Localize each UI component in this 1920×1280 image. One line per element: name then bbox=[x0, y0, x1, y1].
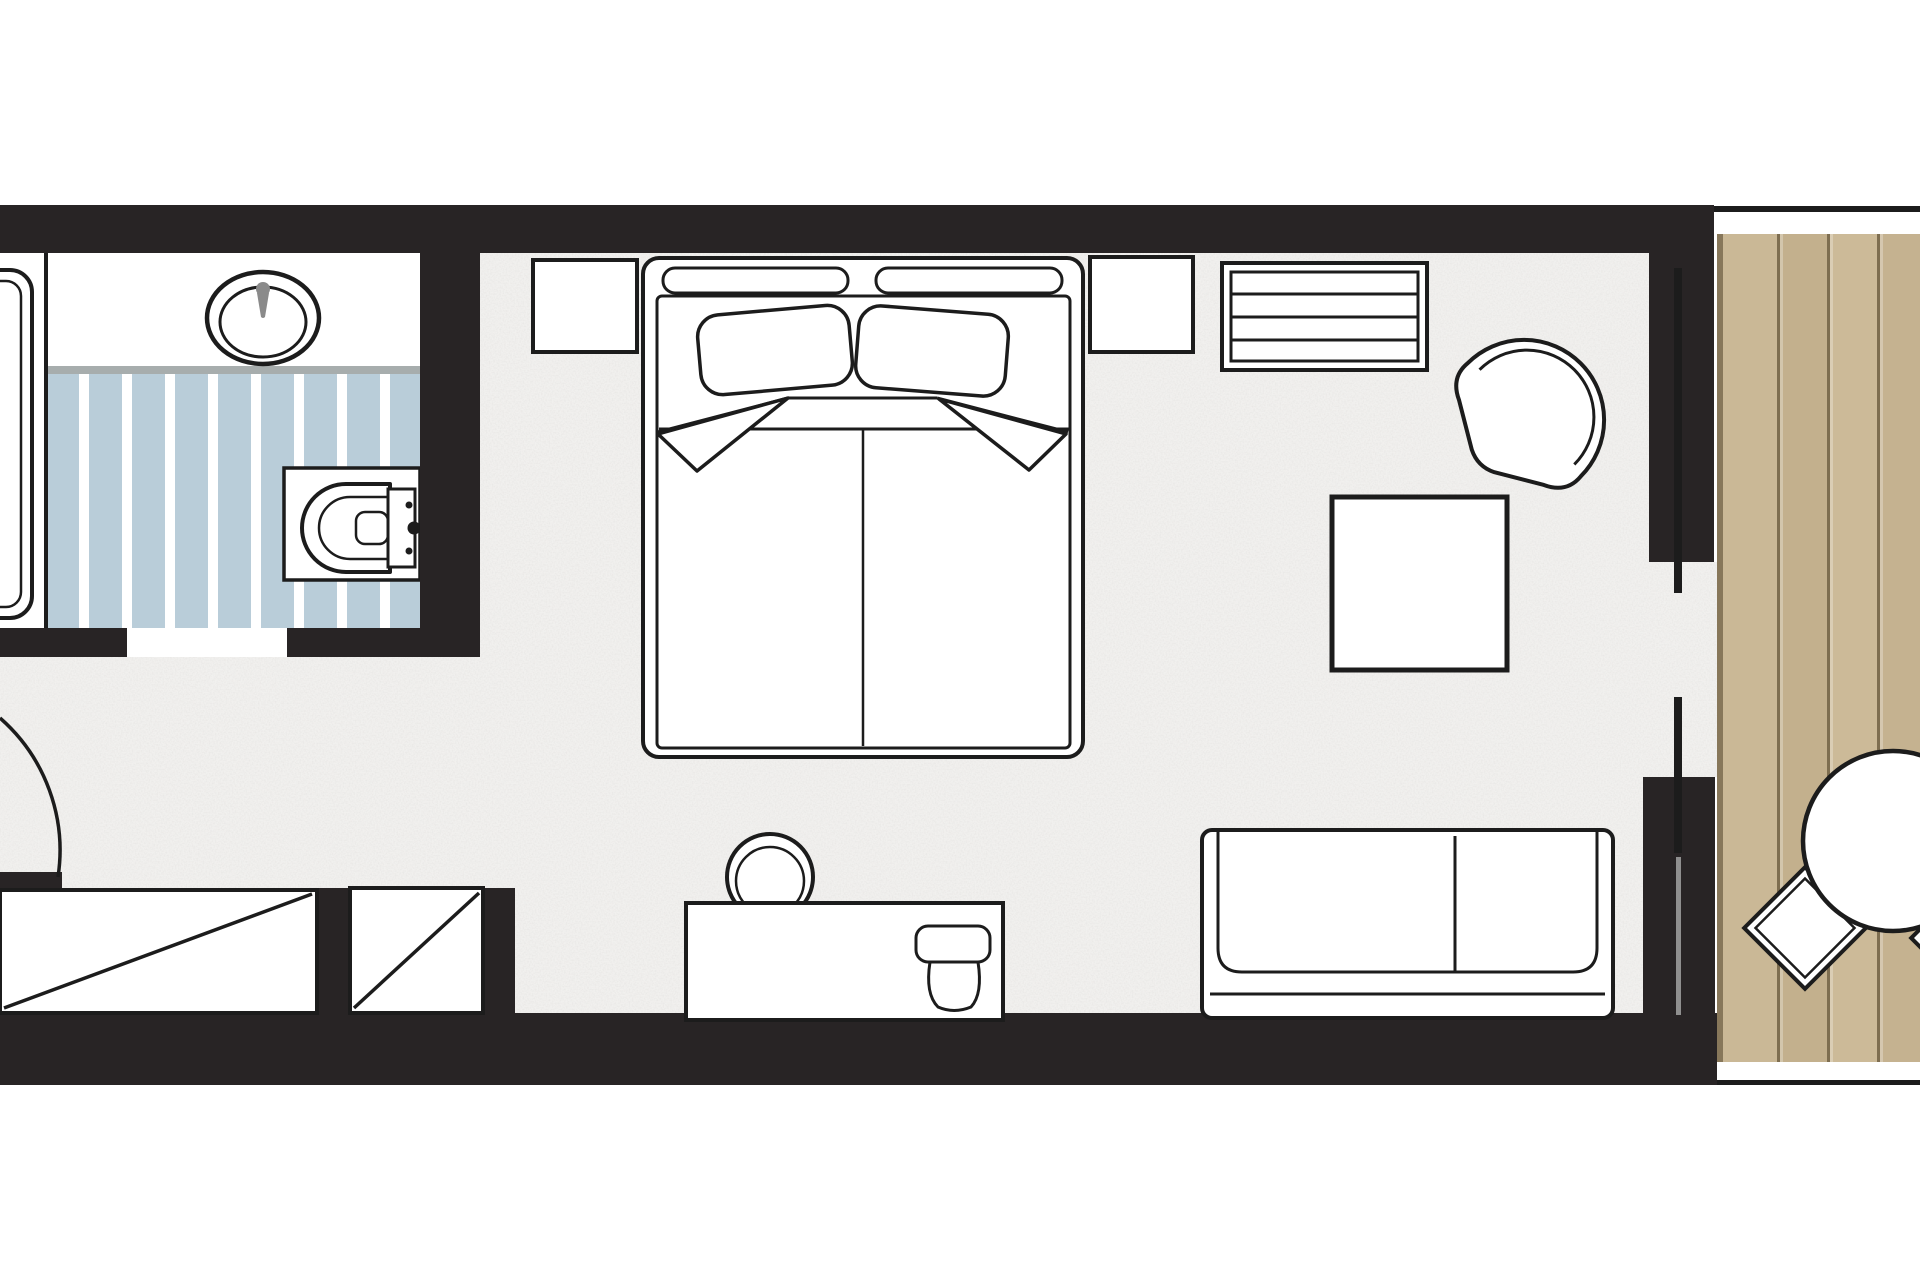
wall-bathroom-bottom-left bbox=[0, 628, 127, 657]
sofa bbox=[1202, 830, 1613, 1018]
luggage-bench bbox=[1222, 263, 1427, 370]
wall-bottom bbox=[0, 1013, 1717, 1085]
floorplan-canvas bbox=[0, 0, 1920, 1280]
wall-wardrobe-divider bbox=[317, 888, 350, 1016]
vanity-counter-edge bbox=[46, 366, 420, 374]
double-bed bbox=[643, 258, 1083, 757]
vanity-sink bbox=[207, 272, 319, 364]
wardrobe-right bbox=[350, 888, 483, 1013]
headboard-cushion-left bbox=[663, 268, 848, 293]
toilet-flush-dot bbox=[408, 522, 421, 535]
wardrobe-left bbox=[0, 890, 317, 1013]
nightstand-left bbox=[533, 260, 637, 352]
headboard-cushion-right bbox=[876, 268, 1062, 293]
nightstand-right bbox=[1090, 257, 1193, 352]
tub-partition-line bbox=[44, 253, 48, 628]
sliding-door-glass bbox=[1676, 857, 1681, 1015]
wall-bathroom-bottom-right bbox=[287, 628, 480, 657]
wall-wardrobe-right bbox=[483, 888, 515, 1016]
bathtub bbox=[0, 270, 32, 618]
pillow-right bbox=[854, 304, 1010, 398]
wall-top bbox=[0, 205, 1714, 253]
wall-bathroom-right bbox=[420, 253, 480, 657]
pillow-left bbox=[696, 304, 854, 397]
bathroom bbox=[0, 253, 421, 628]
floorplan-drawing bbox=[0, 0, 1920, 1280]
toilet bbox=[284, 468, 421, 580]
side-table bbox=[1332, 497, 1507, 670]
